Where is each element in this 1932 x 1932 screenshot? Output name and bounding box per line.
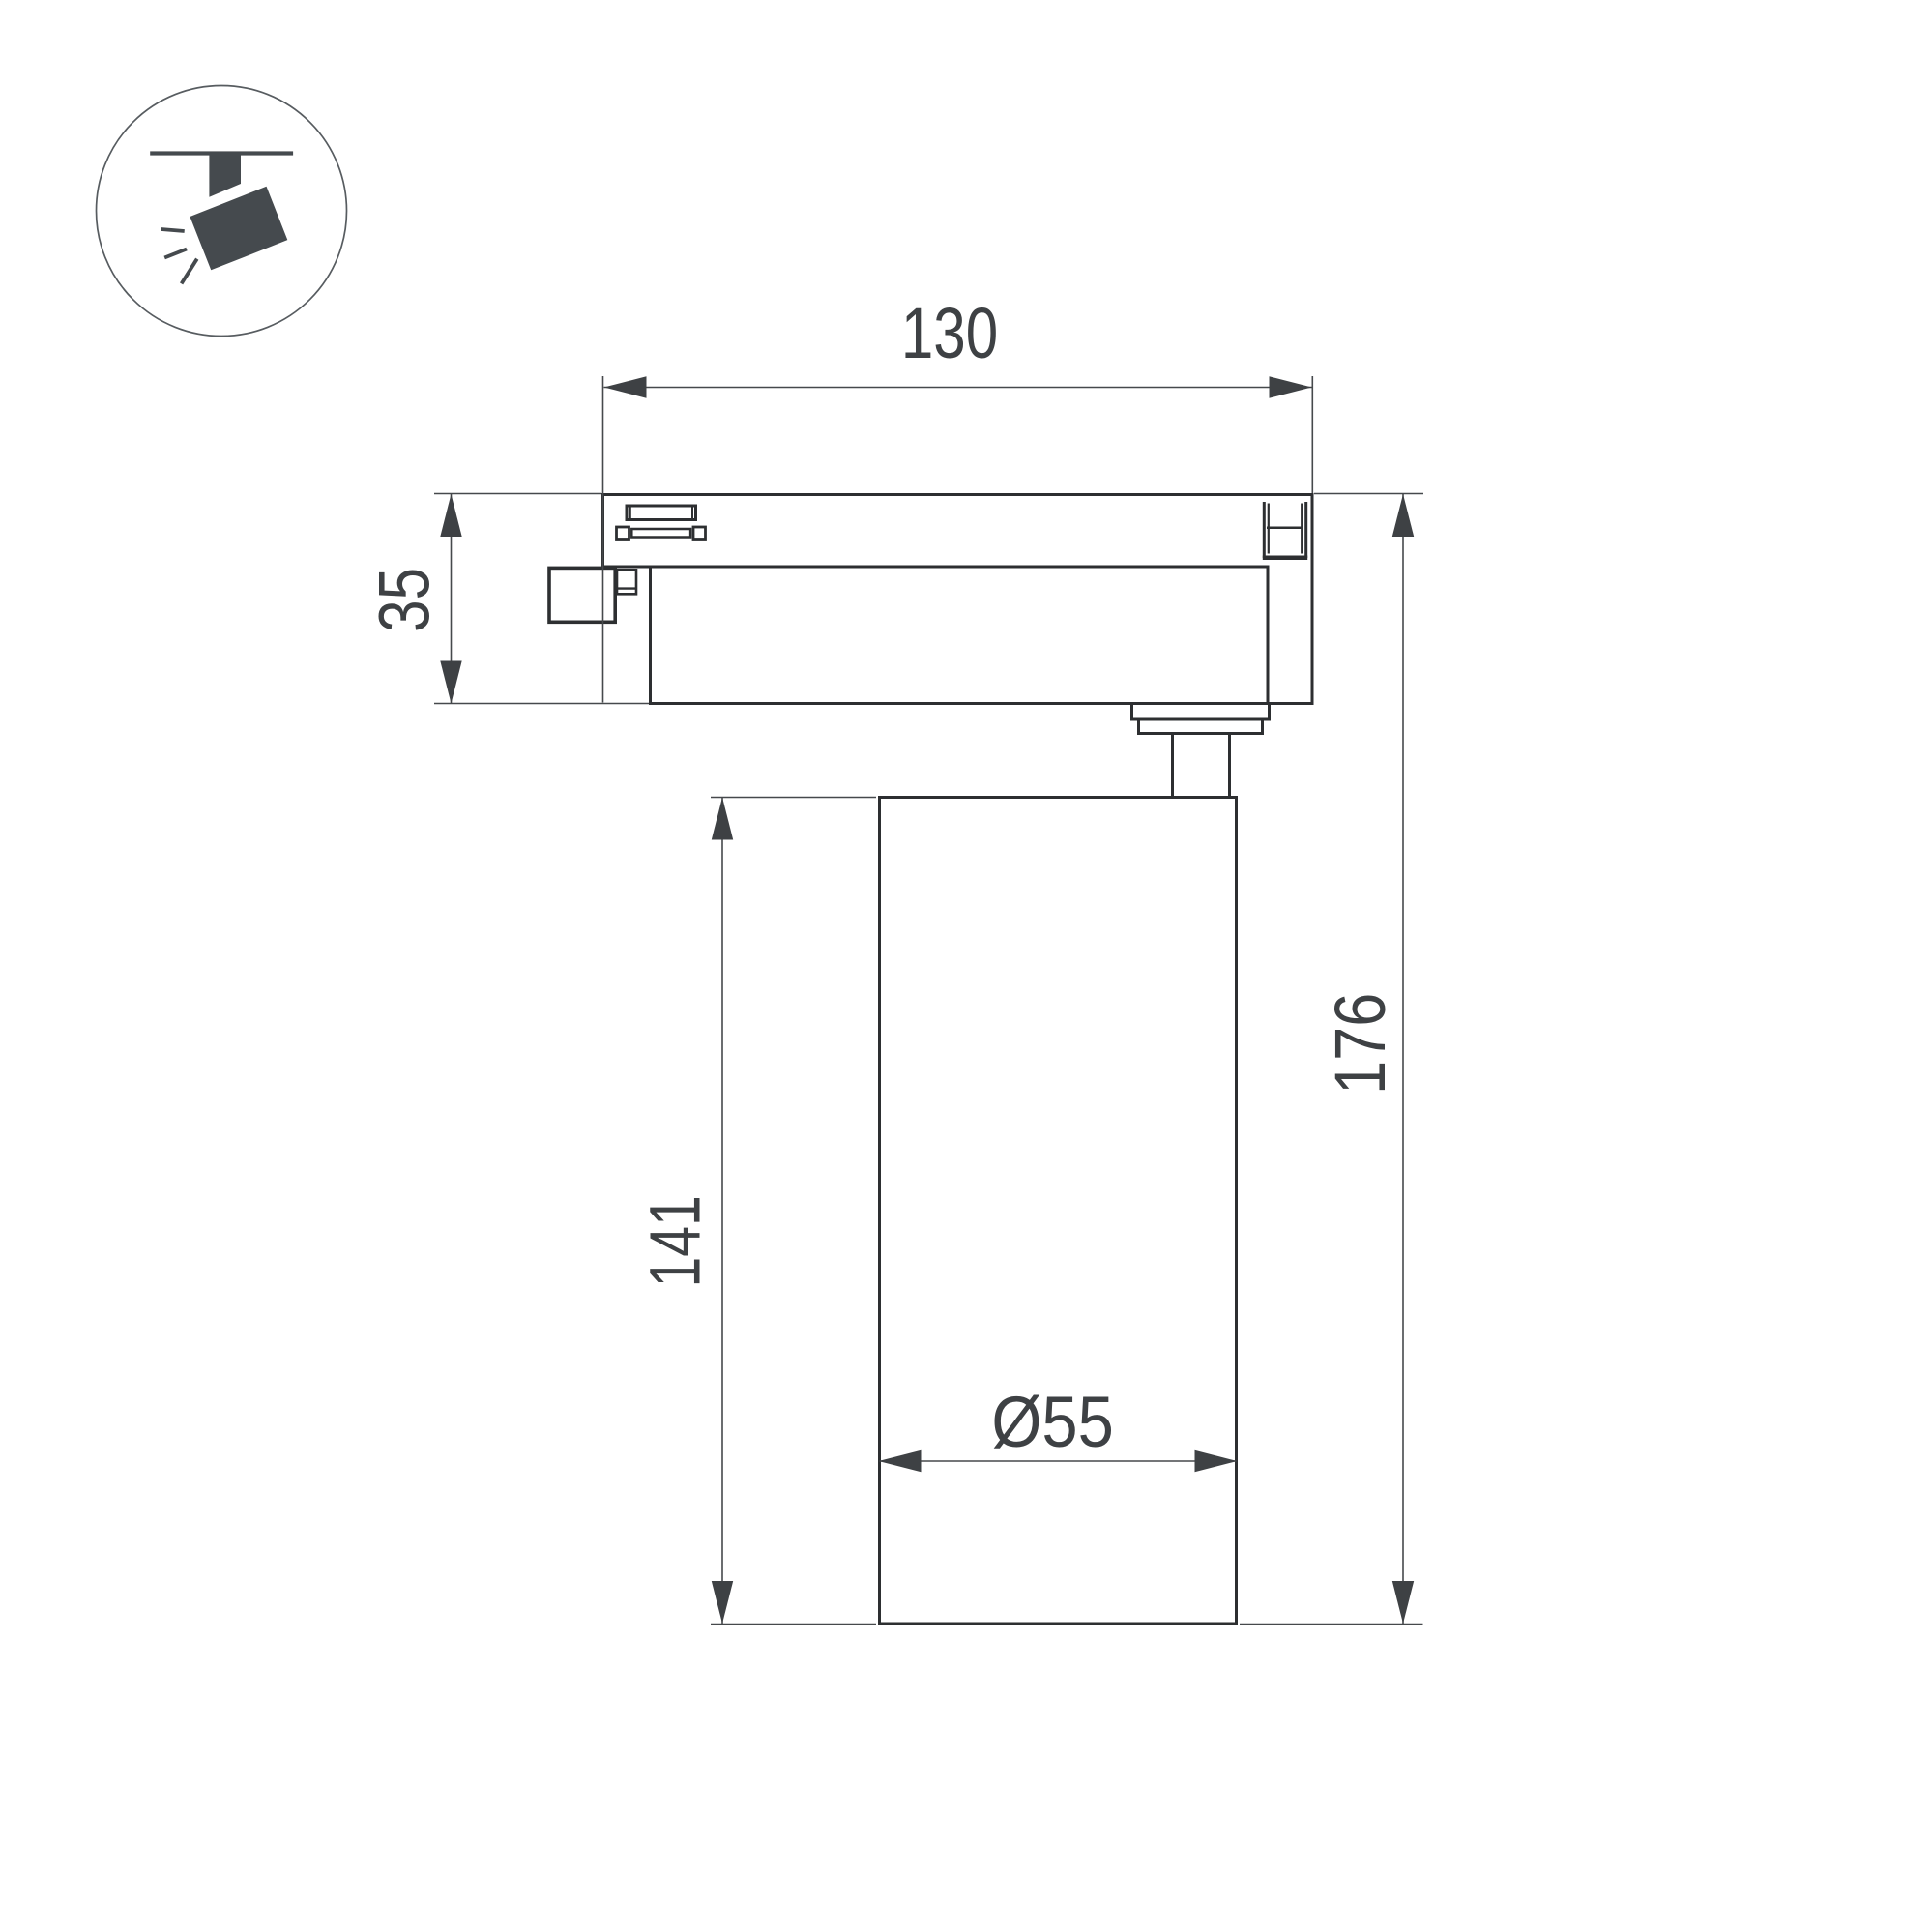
svg-text:176: 176 [1320, 993, 1400, 1095]
svg-text:130: 130 [901, 294, 998, 373]
svg-text:35: 35 [366, 568, 445, 632]
svg-text:141: 141 [635, 1195, 716, 1287]
svg-text:Ø55: Ø55 [991, 1382, 1113, 1462]
